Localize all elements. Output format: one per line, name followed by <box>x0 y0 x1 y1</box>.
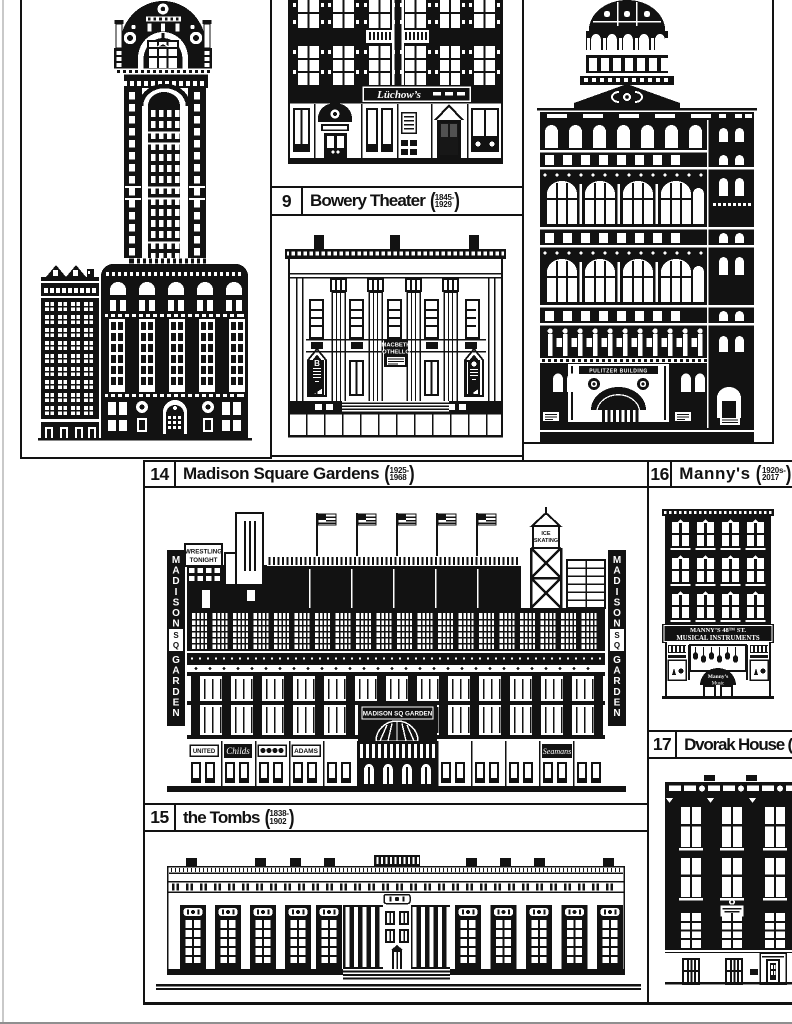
svg-text:MACBETH: MACBETH <box>382 343 411 349</box>
svg-text:S: S <box>173 631 179 640</box>
svg-text:A: A <box>613 566 620 577</box>
svg-text:Seamans: Seamans <box>543 747 571 756</box>
svg-text:SKATING: SKATING <box>534 538 558 544</box>
svg-text:WRESTLING: WRESTLING <box>185 549 222 556</box>
svg-text:MANNY’S 48™ ST.: MANNY’S 48™ ST. <box>690 627 746 634</box>
svg-text:D: D <box>613 687 620 698</box>
svg-text:UNITED: UNITED <box>193 749 216 755</box>
svg-text:PULITZER BUILDING: PULITZER BUILDING <box>589 369 648 375</box>
svg-text:N: N <box>613 619 620 630</box>
svg-text:TONIGHT: TONIGHT <box>190 557 218 564</box>
svg-text:I: I <box>175 587 178 598</box>
svg-text:I: I <box>616 587 619 598</box>
svg-text:D: D <box>613 576 620 587</box>
svg-text:Manny’s: Manny’s <box>708 674 729 680</box>
svg-text:E: E <box>614 697 621 708</box>
svg-text:N: N <box>613 708 620 719</box>
svg-text:N: N <box>172 619 179 630</box>
svg-text:ICE: ICE <box>541 531 551 537</box>
svg-text:S: S <box>173 597 180 608</box>
svg-text:ADAMS: ADAMS <box>294 748 318 755</box>
svg-text:N: N <box>172 708 179 719</box>
svg-text:S: S <box>614 597 621 608</box>
svg-text:B: B <box>314 359 320 368</box>
svg-text:Q: Q <box>614 641 620 650</box>
svg-text:S: S <box>614 631 620 640</box>
svg-text:G: G <box>172 655 180 666</box>
svg-text:Lüchow’s: Lüchow’s <box>376 89 421 101</box>
svg-text:A: A <box>172 566 179 577</box>
svg-text:R: R <box>613 676 621 687</box>
svg-text:R: R <box>172 676 180 687</box>
svg-text:O: O <box>172 608 180 619</box>
svg-text:O: O <box>613 608 621 619</box>
svg-text:E: E <box>173 697 180 708</box>
svg-text:A: A <box>613 666 620 677</box>
svg-text:Q: Q <box>173 641 179 650</box>
svg-text:MUSICAL INSTRUMENTS: MUSICAL INSTRUMENTS <box>676 635 759 642</box>
svg-text:G: G <box>613 655 621 666</box>
svg-text:M: M <box>613 555 621 566</box>
svg-text:MADISON SQ GARDEN: MADISON SQ GARDEN <box>363 711 433 718</box>
svg-text:A: A <box>172 666 179 677</box>
svg-text:OTHELLO: OTHELLO <box>382 350 410 356</box>
svg-text:Childs: Childs <box>226 746 250 756</box>
svg-text:D: D <box>172 687 179 698</box>
svg-text:M: M <box>172 555 180 566</box>
svg-text:D: D <box>172 576 179 587</box>
